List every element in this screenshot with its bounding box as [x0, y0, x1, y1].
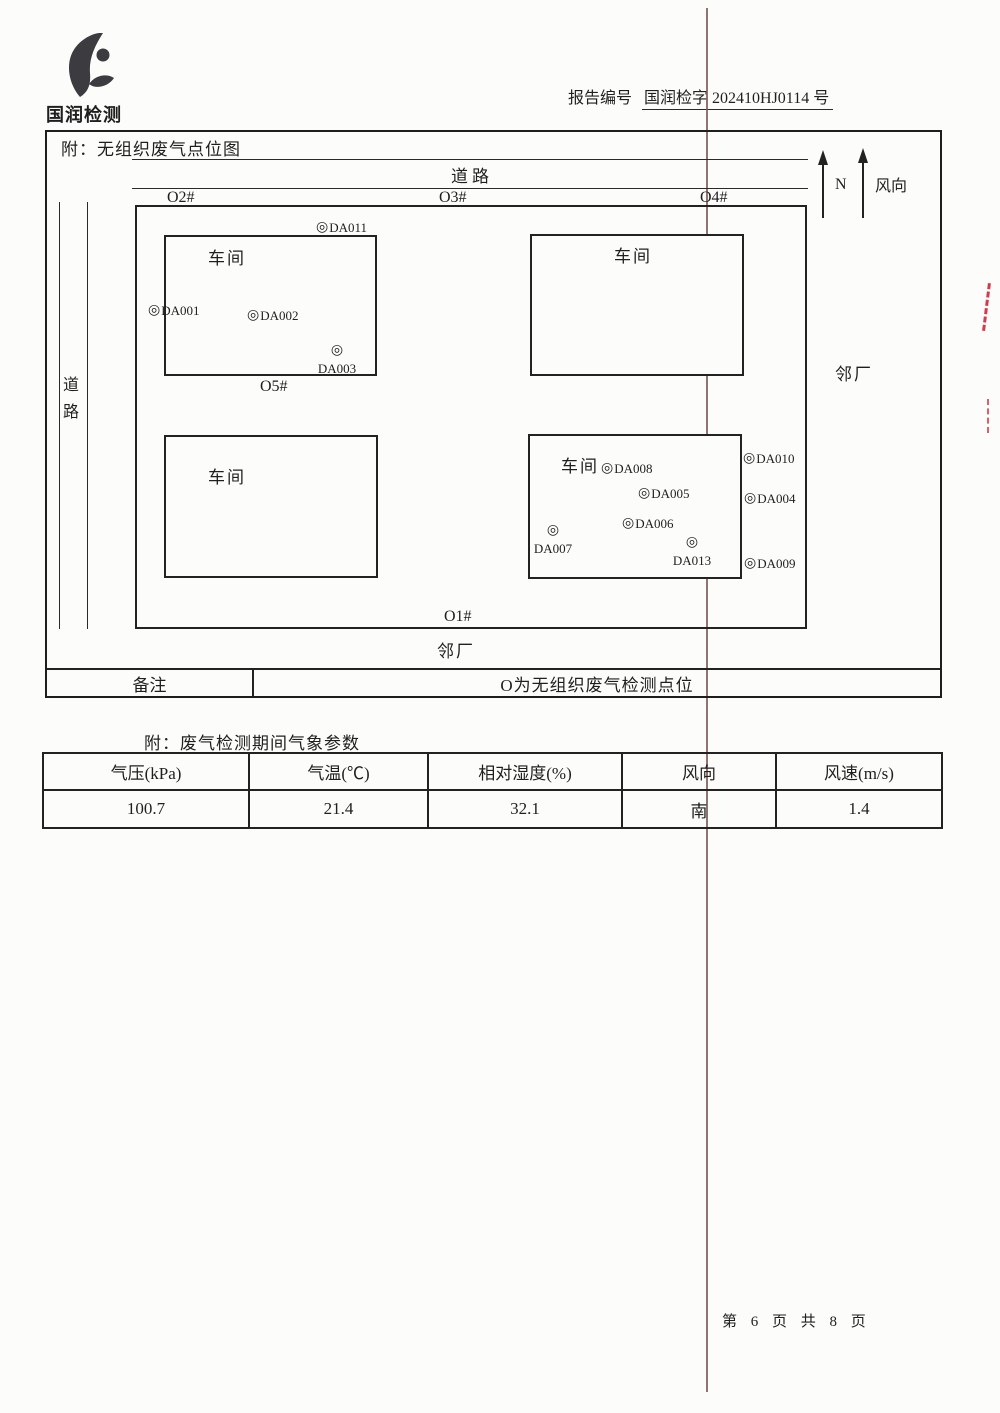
point-DA008: ◎ DA008 — [601, 461, 653, 477]
road-left-line-outer — [59, 202, 60, 629]
north-arrow-icon — [815, 150, 831, 220]
point-label: DA007 — [534, 541, 572, 557]
boundary-point-o1: O1# — [444, 608, 472, 626]
point-label: DA011 — [329, 220, 367, 236]
wind-direction-indicator: 风向 — [855, 148, 907, 220]
point-DA004: ◎ DA004 — [744, 491, 796, 507]
monitoring-point-icon: ◎ — [148, 304, 160, 318]
report-number-line: 报告编号国润检字 202410HJ0114 号 — [568, 84, 833, 108]
company-logo-text: 国润检测 — [46, 101, 122, 127]
report-number-suffix: 号 — [813, 90, 829, 107]
monitoring-point-icon: ◎ — [247, 309, 259, 323]
point-label: DA005 — [651, 486, 689, 502]
weather-col-pressure: 气压(kPa) — [43, 753, 249, 790]
road-left-line-inner — [87, 202, 88, 629]
point-label: DA001 — [161, 303, 199, 319]
point-label: DA009 — [757, 556, 795, 572]
point-label: DA002 — [260, 308, 298, 324]
weather-value-row: 100.7 21.4 32.1 南 1.4 — [43, 790, 942, 828]
diagram-title: 附：无组织废气点位图 — [61, 135, 241, 160]
monitoring-point-icon: ◎ — [743, 452, 755, 466]
monitoring-point-icon: ◎ — [601, 462, 613, 476]
road-left-label: 道路 — [61, 372, 81, 426]
red-stamp-mark — [987, 399, 989, 433]
workshop-top-right: 车间 — [530, 234, 744, 376]
neighbor-factory-bottom: 邻厂 — [437, 637, 475, 662]
weather-wind-direction-value: 南 — [622, 790, 776, 828]
neighbor-factory-right: 邻厂 — [835, 360, 873, 385]
weather-pressure-value: 100.7 — [43, 790, 249, 828]
point-DA011: ◎ DA011 — [316, 220, 367, 236]
scanned-report-page: 国润检测 报告编号国润检字 202410HJ0114 号 附：无组织废气点位图 … — [0, 0, 1000, 1413]
road-top-line-upper — [132, 159, 808, 160]
point-DA010: ◎ DA010 — [743, 451, 795, 467]
point-label: DA013 — [673, 553, 711, 569]
workshop-label: 车间 — [561, 452, 599, 477]
point-DA003: ◎ DA003 — [309, 344, 365, 377]
site-layout-diagram: 附：无组织废气点位图 道路 O2# O3# O4# N 风向 道路 — [45, 130, 942, 698]
monitoring-point-icon: ◎ — [638, 487, 650, 501]
point-label: DA006 — [635, 516, 673, 532]
wind-direction-label: 风向 — [875, 172, 907, 196]
point-DA001: ◎ DA001 — [148, 303, 200, 319]
point-DA013: ◎ DA013 — [664, 536, 720, 569]
monitoring-point-icon: ◎ — [547, 524, 559, 538]
workshop-label: 车间 — [208, 244, 246, 269]
remark-label: 备注 — [47, 670, 254, 696]
wind-arrow-icon — [855, 148, 871, 220]
red-stamp-mark — [982, 283, 991, 331]
point-label: DA004 — [757, 491, 795, 507]
point-label: DA010 — [756, 451, 794, 467]
weather-col-temperature: 气温(℃) — [249, 753, 428, 790]
weather-col-humidity: 相对湿度(%) — [428, 753, 622, 790]
point-DA007: ◎ DA007 — [525, 524, 581, 557]
workshop-bottom-left: 车间 — [164, 435, 378, 578]
weather-temperature-value: 21.4 — [249, 790, 428, 828]
monitoring-point-icon: ◎ — [744, 492, 756, 506]
north-indicator: N — [815, 150, 847, 220]
monitoring-point-icon: ◎ — [744, 557, 756, 571]
weather-col-wind-speed: 风速(m/s) — [776, 753, 942, 790]
road-top-label: 道路 — [432, 162, 512, 187]
point-DA009: ◎ DA009 — [744, 556, 796, 572]
page-number: 第 6 页 共 8 页 — [722, 1310, 871, 1331]
weather-col-wind-direction: 风向 — [622, 753, 776, 790]
remark-row: 备注 O为无组织废气检测点位 — [47, 668, 940, 696]
north-label: N — [835, 176, 847, 194]
monitoring-point-icon: ◎ — [686, 536, 698, 550]
monitoring-point-icon: ◎ — [316, 221, 328, 235]
workshop-label: 车间 — [208, 463, 246, 488]
weather-header-row: 气压(kPa) 气温(℃) 相对湿度(%) 风向 风速(m/s) — [43, 753, 942, 790]
point-label: DA003 — [318, 361, 356, 377]
boundary-point-o5: O5# — [260, 378, 288, 396]
weather-section-title: 附：废气检测期间气象参数 — [144, 729, 360, 754]
weather-humidity-value: 32.1 — [428, 790, 622, 828]
report-number-value: 国润检字 202410HJ0114 — [644, 90, 809, 107]
weather-table: 气压(kPa) 气温(℃) 相对湿度(%) 风向 风速(m/s) 100.7 2… — [42, 752, 943, 829]
point-DA002: ◎ DA002 — [247, 308, 299, 324]
point-DA006: ◎ DA006 — [622, 516, 674, 532]
point-label: DA008 — [614, 461, 652, 477]
weather-wind-speed-value: 1.4 — [776, 790, 942, 828]
report-number-label: 报告编号 — [568, 90, 632, 107]
workshop-label: 车间 — [614, 242, 652, 267]
monitoring-point-icon: ◎ — [331, 344, 343, 358]
monitoring-point-icon: ◎ — [622, 517, 634, 531]
remark-text: O为无组织废气检测点位 — [254, 670, 940, 696]
company-logo-icon — [58, 33, 122, 99]
point-DA005: ◎ DA005 — [638, 486, 690, 502]
